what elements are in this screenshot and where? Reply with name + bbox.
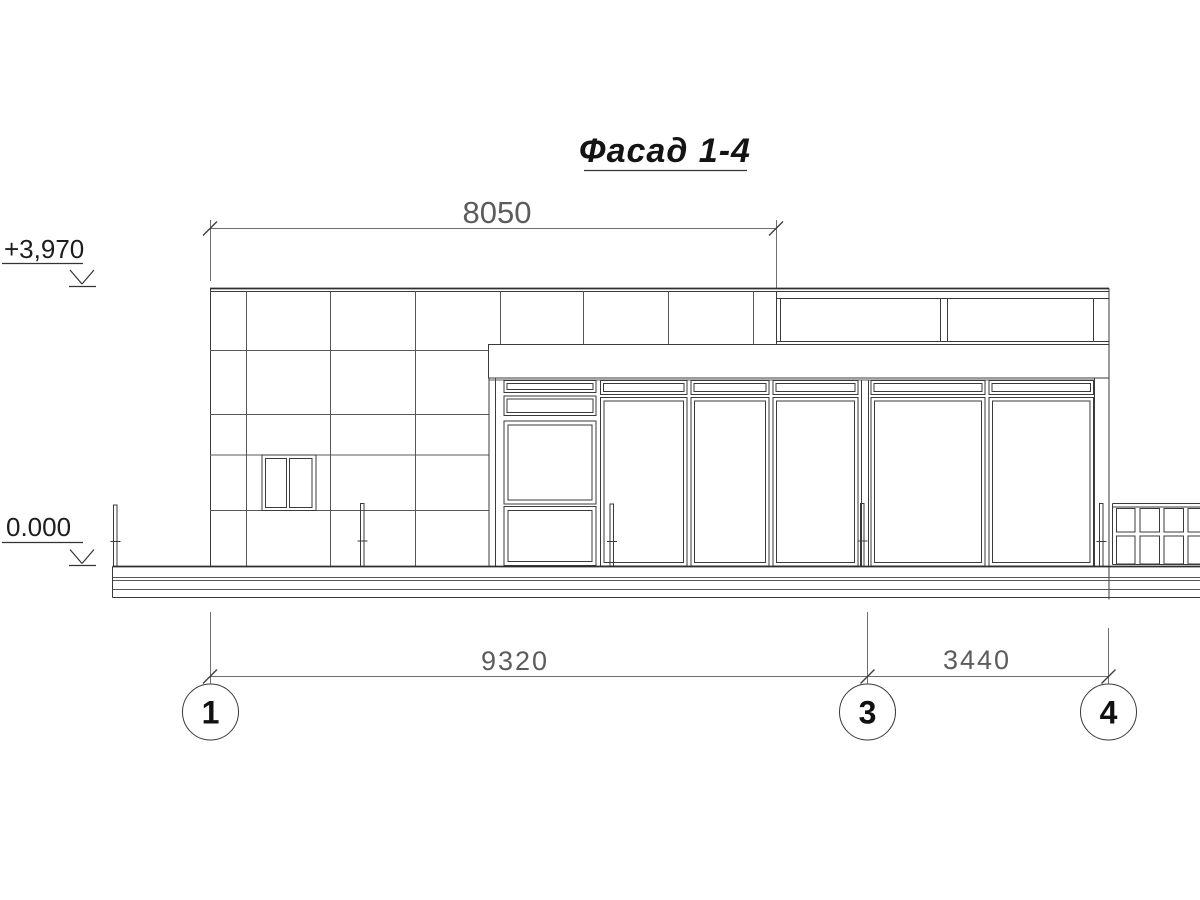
glass-sash-glass bbox=[875, 401, 982, 563]
axis-marker-4: 4 bbox=[1081, 684, 1137, 740]
transom-pane bbox=[601, 381, 688, 395]
door-panel-glass bbox=[508, 511, 592, 562]
dimension-bottom: 9320 3440 bbox=[203, 612, 1116, 684]
glass-sash-glass bbox=[604, 401, 684, 563]
window-pane bbox=[290, 459, 313, 508]
level-arrow-icon bbox=[70, 550, 94, 564]
dimension-label-right: 3440 bbox=[943, 645, 1011, 675]
glass-sash bbox=[989, 398, 1094, 567]
elevation-mark-roof: +3,970 bbox=[2, 234, 96, 287]
axis-label: 1 bbox=[202, 695, 220, 731]
fence-top-rail bbox=[1113, 504, 1200, 508]
side-fence bbox=[1113, 504, 1200, 565]
dimension-label-left: 9320 bbox=[481, 646, 549, 676]
glass-sash-glass bbox=[695, 401, 766, 563]
transom-pane-glass bbox=[776, 384, 855, 392]
transom-pane bbox=[504, 381, 596, 393]
transom-pane-glass bbox=[604, 384, 685, 392]
railing-post bbox=[610, 504, 614, 567]
platform-base bbox=[113, 567, 1200, 598]
railing-posts bbox=[111, 504, 1107, 567]
window-pane bbox=[266, 459, 287, 508]
drawing-sheet: Фасад 1-4 8050 +3,970 0.000 bbox=[0, 0, 1200, 900]
parapet-railing bbox=[777, 292, 1110, 345]
glass-sash bbox=[773, 398, 858, 567]
railing-post bbox=[1100, 504, 1104, 567]
platform-course-lines bbox=[113, 578, 1200, 590]
axis-label: 3 bbox=[859, 695, 877, 731]
transom-pane bbox=[691, 381, 769, 395]
panel-joints-horizontal bbox=[210, 351, 489, 511]
fence-panel bbox=[1117, 509, 1136, 533]
drawing-title: Фасад 1-4 bbox=[579, 132, 751, 170]
structural-pier bbox=[862, 381, 869, 567]
transom-pane-glass bbox=[507, 384, 593, 390]
transom-pane bbox=[989, 381, 1094, 395]
level-arrow-icon bbox=[70, 270, 94, 284]
fence-panel bbox=[1117, 536, 1136, 564]
railing-post bbox=[361, 504, 365, 567]
glass-sash-glass bbox=[777, 401, 855, 563]
parapet-mullion bbox=[941, 299, 948, 342]
elevation-label-ground: 0.000 bbox=[6, 512, 71, 542]
transom-pane bbox=[871, 381, 985, 395]
door-panel bbox=[504, 507, 596, 566]
fence-panel bbox=[1140, 536, 1160, 564]
elevation-mark-ground: 0.000 bbox=[2, 512, 96, 566]
panel-grid bbox=[210, 292, 754, 567]
fence-panel bbox=[1188, 509, 1200, 533]
transom-pane-glass bbox=[992, 384, 1091, 392]
railing-post bbox=[114, 505, 118, 567]
dimension-top: 8050 bbox=[203, 195, 783, 288]
facade-elevation-drawing: Фасад 1-4 8050 +3,970 0.000 bbox=[0, 0, 1200, 900]
axis-label: 4 bbox=[1100, 695, 1118, 731]
fence-panel bbox=[1188, 536, 1200, 564]
door-sash bbox=[504, 421, 596, 504]
elevation-label-roof: +3,970 bbox=[4, 234, 84, 264]
transom-pane-glass bbox=[694, 384, 766, 392]
axis-marker-1: 1 bbox=[183, 684, 239, 740]
fence-panel bbox=[1140, 509, 1160, 533]
fence-panel bbox=[1164, 536, 1184, 564]
fascia-band bbox=[489, 345, 1110, 379]
window-small bbox=[262, 455, 316, 511]
panel-joints-vertical-band bbox=[501, 292, 754, 345]
transom-pane-glass bbox=[874, 384, 982, 392]
extension-lines bbox=[211, 220, 777, 288]
glass-sash bbox=[691, 398, 769, 567]
transom-pane bbox=[773, 381, 858, 395]
glass-sash-glass bbox=[993, 401, 1091, 563]
storefront-frame bbox=[489, 378, 1095, 567]
storefront-left-jamb bbox=[489, 378, 496, 567]
door-sash-glass bbox=[508, 425, 592, 500]
title-block: Фасад 1-4 bbox=[579, 132, 751, 171]
panel-joints-vertical bbox=[247, 292, 416, 567]
storefront-sashes bbox=[504, 398, 1094, 567]
building-elevation bbox=[111, 289, 1200, 600]
fence-panel bbox=[1164, 509, 1184, 533]
axis-markers: 1 3 4 bbox=[183, 684, 1137, 740]
dimension-label-top: 8050 bbox=[463, 195, 532, 230]
transom-pane-glass bbox=[507, 399, 593, 413]
glass-sash bbox=[871, 398, 985, 567]
axis-marker-3: 3 bbox=[840, 684, 896, 740]
